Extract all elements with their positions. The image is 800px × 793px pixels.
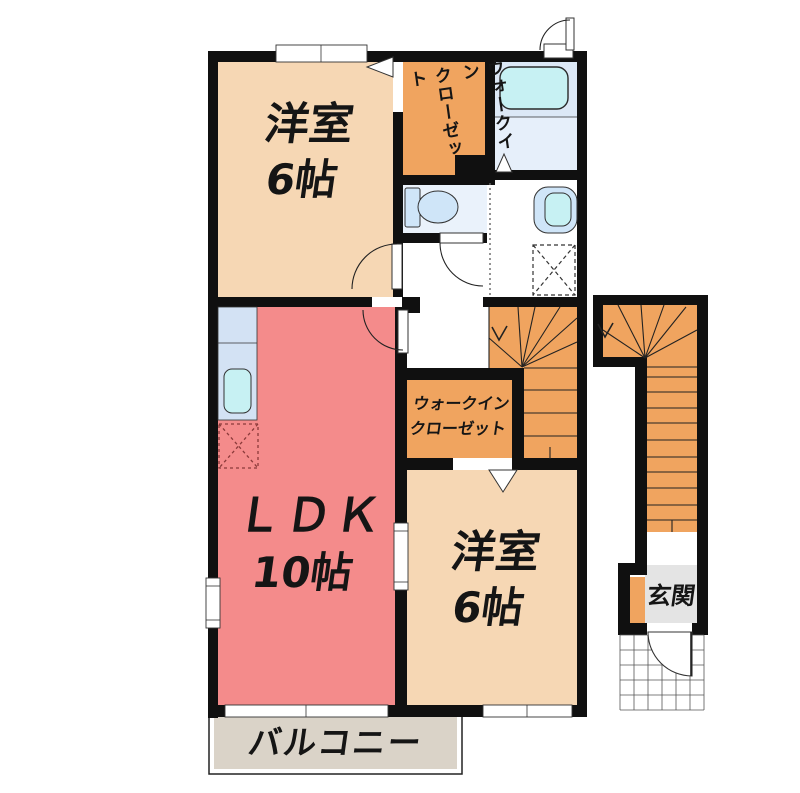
exterior-stairs-structure (603, 305, 697, 623)
inner-stairs-run-floor (524, 368, 577, 460)
kitchen-counter (218, 307, 257, 420)
bedroom-top-size: 6帖 (210, 153, 393, 208)
ldk-door-opening (372, 297, 402, 307)
bedroom-top-door-leaf (392, 244, 402, 289)
ldk-label: ＬＤＫ 10帖 (210, 486, 403, 600)
bedroom-top-window (276, 45, 367, 62)
wic-mid-label-line2: クローゼット (404, 417, 512, 442)
wic-top-label: ウォークイン クローゼット (401, 57, 524, 179)
ext-stairs-run-floor (647, 360, 697, 532)
ldk-door-leaf (398, 310, 408, 353)
entrance-porch (620, 623, 704, 710)
bedroom-top-label: 洋室 6帖 (210, 96, 401, 208)
bedroom-bottom-window (483, 705, 572, 717)
ldk-balcony-window (225, 705, 388, 717)
floorplan: 洋室 6帖 ウォークイン クローゼット ＬＤＫ 10帖 ウォークイン クローゼッ… (0, 0, 800, 793)
bedroom-bottom-size: 6帖 (399, 581, 577, 636)
ldk-name: ＬＤＫ (218, 486, 403, 546)
toilet-door-swing (440, 243, 483, 286)
toilet-bowl (418, 191, 458, 223)
floorplan-drawing (0, 0, 800, 793)
balcony-label: バルコニー (211, 722, 460, 765)
bath-ext-door-leaf (566, 18, 574, 50)
bedroom-bottom-name: 洋室 (407, 524, 585, 581)
wic-mid-label-line1: ウォークイン (407, 392, 515, 417)
ldk-size: 10帖 (210, 546, 395, 601)
bedroom-top-name: 洋室 (218, 96, 401, 153)
entrance-door-swing (648, 632, 692, 676)
washstand-bowl (545, 193, 571, 226)
kitchen-sink (224, 369, 251, 413)
entrance-label: 玄関 (639, 581, 703, 612)
bedroom-bottom-label: 洋室 6帖 (399, 524, 585, 636)
wic-mid-label: ウォークイン クローゼット (404, 392, 516, 442)
wic-mid-opening (453, 458, 512, 470)
toilet-door-leaf (440, 233, 483, 243)
